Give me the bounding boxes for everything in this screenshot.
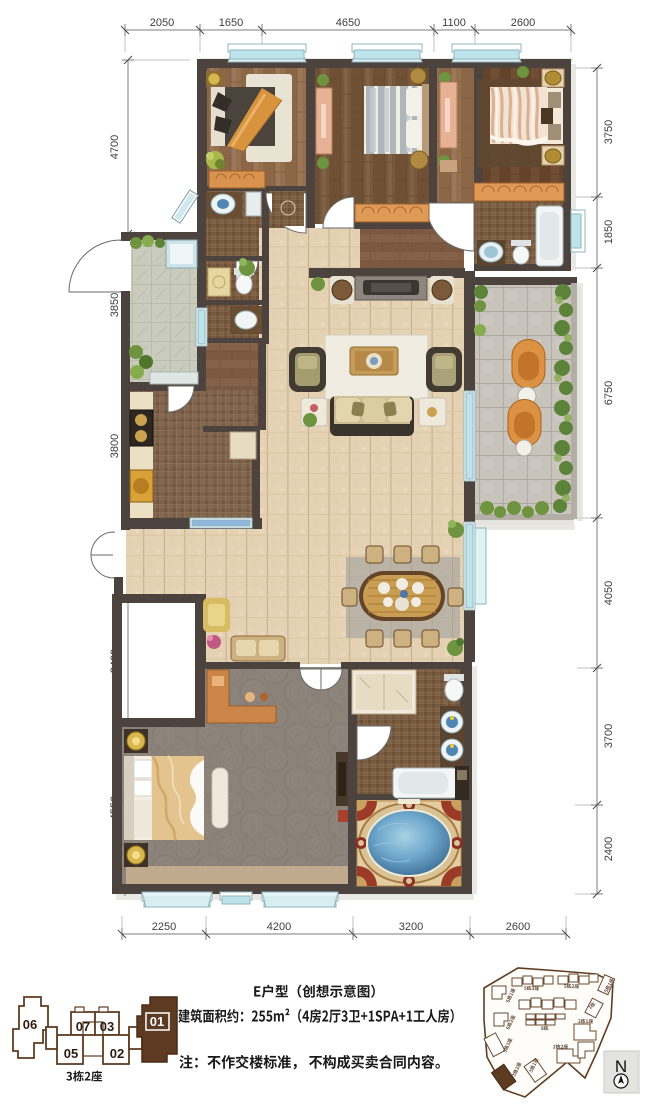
svg-text:3700: 3700 [603,724,615,748]
svg-text:01: 01 [150,1014,164,1029]
svg-text:N: N [615,1057,627,1076]
svg-text:3850: 3850 [109,293,121,317]
svg-text:07: 07 [76,1019,90,1034]
svg-text:2600: 2600 [511,17,535,29]
svg-text:4650: 4650 [336,17,360,29]
svg-text:06: 06 [23,1017,37,1032]
svg-text:6750: 6750 [603,381,615,405]
svg-text:02: 02 [110,1046,124,1061]
svg-text:3800: 3800 [109,434,121,458]
svg-text:2400: 2400 [603,837,615,861]
svg-text:05: 05 [64,1046,78,1061]
svg-text:1850: 1850 [603,220,615,244]
svg-text:4200: 4200 [267,921,291,933]
svg-text:3750: 3750 [603,120,615,144]
svg-text:4700: 4700 [109,135,121,159]
svg-text:2050: 2050 [150,17,174,29]
svg-text:3200: 3200 [399,921,423,933]
svg-text:4050: 4050 [603,581,615,605]
svg-text:1100: 1100 [442,17,466,29]
svg-text:1650: 1650 [219,17,243,29]
svg-text:2250: 2250 [152,921,176,933]
svg-text:2600: 2600 [506,921,530,933]
svg-text:03: 03 [100,1019,114,1034]
